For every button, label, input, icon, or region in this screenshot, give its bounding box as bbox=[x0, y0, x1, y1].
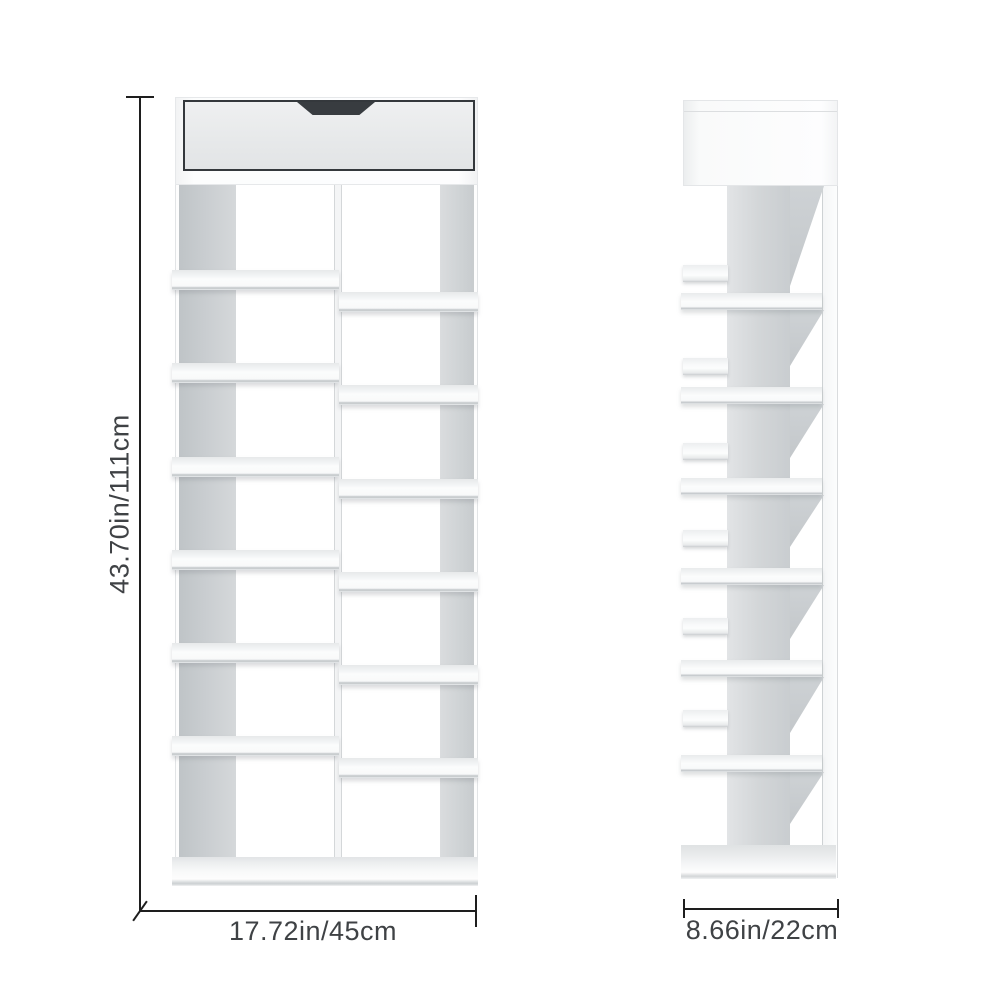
side-base bbox=[681, 845, 836, 879]
side-shelf-4 bbox=[681, 568, 822, 585]
side-cell-divider-3 bbox=[727, 404, 790, 478]
shelf-left-2 bbox=[172, 363, 339, 383]
height-dimension-label: 43.70in/111cm bbox=[105, 414, 136, 594]
shelf-left-5 bbox=[172, 643, 339, 663]
side-cell-divider-5 bbox=[727, 585, 790, 660]
side-stub-shelf-5 bbox=[683, 618, 728, 635]
depth-dimension-label: 8.66in/22cm bbox=[686, 915, 839, 946]
front-base bbox=[172, 857, 478, 886]
shelf-right-5 bbox=[339, 665, 478, 685]
side-stub-shelf-4 bbox=[683, 530, 728, 547]
side-shelf-3 bbox=[681, 478, 822, 495]
side-shelf-5 bbox=[681, 660, 822, 677]
side-cell-shadow-5 bbox=[790, 585, 824, 639]
side-cell-shadow-7 bbox=[790, 772, 824, 824]
depth-left-tick bbox=[683, 899, 685, 918]
side-cell-shadow-2 bbox=[790, 310, 824, 366]
shelf-right-3 bbox=[339, 479, 478, 499]
side-stub-shelf-3 bbox=[683, 443, 728, 460]
shelf-left-3 bbox=[172, 457, 339, 477]
shelf-right-2 bbox=[339, 385, 478, 405]
side-cell-shadow-3 bbox=[790, 404, 824, 458]
side-cell-divider-1 bbox=[727, 186, 790, 293]
side-drawer-box bbox=[683, 100, 838, 186]
side-back-panel bbox=[822, 186, 838, 878]
side-cell-shadow-6 bbox=[790, 677, 824, 733]
side-shelf-1 bbox=[681, 293, 822, 310]
side-cell-divider-4 bbox=[727, 495, 790, 568]
shelf-right-4 bbox=[339, 572, 478, 592]
side-cell-shadow-1 bbox=[790, 186, 824, 286]
height-dimension-line bbox=[139, 97, 141, 911]
shelf-right-1 bbox=[339, 292, 478, 312]
side-shelf-2 bbox=[681, 387, 822, 404]
shelf-right-6 bbox=[339, 758, 478, 778]
product-dimension-diagram: 43.70in/111cm 17.72in/45cm 8.66in/22cm bbox=[0, 0, 1000, 1000]
width-dimension-label: 17.72in/45cm bbox=[229, 916, 397, 947]
shelf-left-1 bbox=[172, 270, 339, 290]
side-stub-shelf-1 bbox=[683, 265, 728, 282]
shelf-left-4 bbox=[172, 550, 339, 570]
width-right-tick bbox=[475, 895, 477, 927]
height-top-tick bbox=[126, 96, 154, 98]
side-stub-shelf-2 bbox=[683, 358, 728, 375]
side-cell-divider-7 bbox=[727, 772, 790, 845]
side-drawer-lid-line bbox=[684, 111, 837, 112]
side-cell-shadow-4 bbox=[790, 495, 824, 547]
shelf-left-6 bbox=[172, 736, 339, 756]
side-stub-shelf-6 bbox=[683, 710, 728, 727]
width-dimension-line bbox=[140, 910, 477, 912]
side-cell-divider-2 bbox=[727, 310, 790, 387]
side-shelf-6 bbox=[681, 755, 822, 772]
side-cell-divider-6 bbox=[727, 677, 790, 755]
depth-dimension-line bbox=[684, 908, 838, 910]
